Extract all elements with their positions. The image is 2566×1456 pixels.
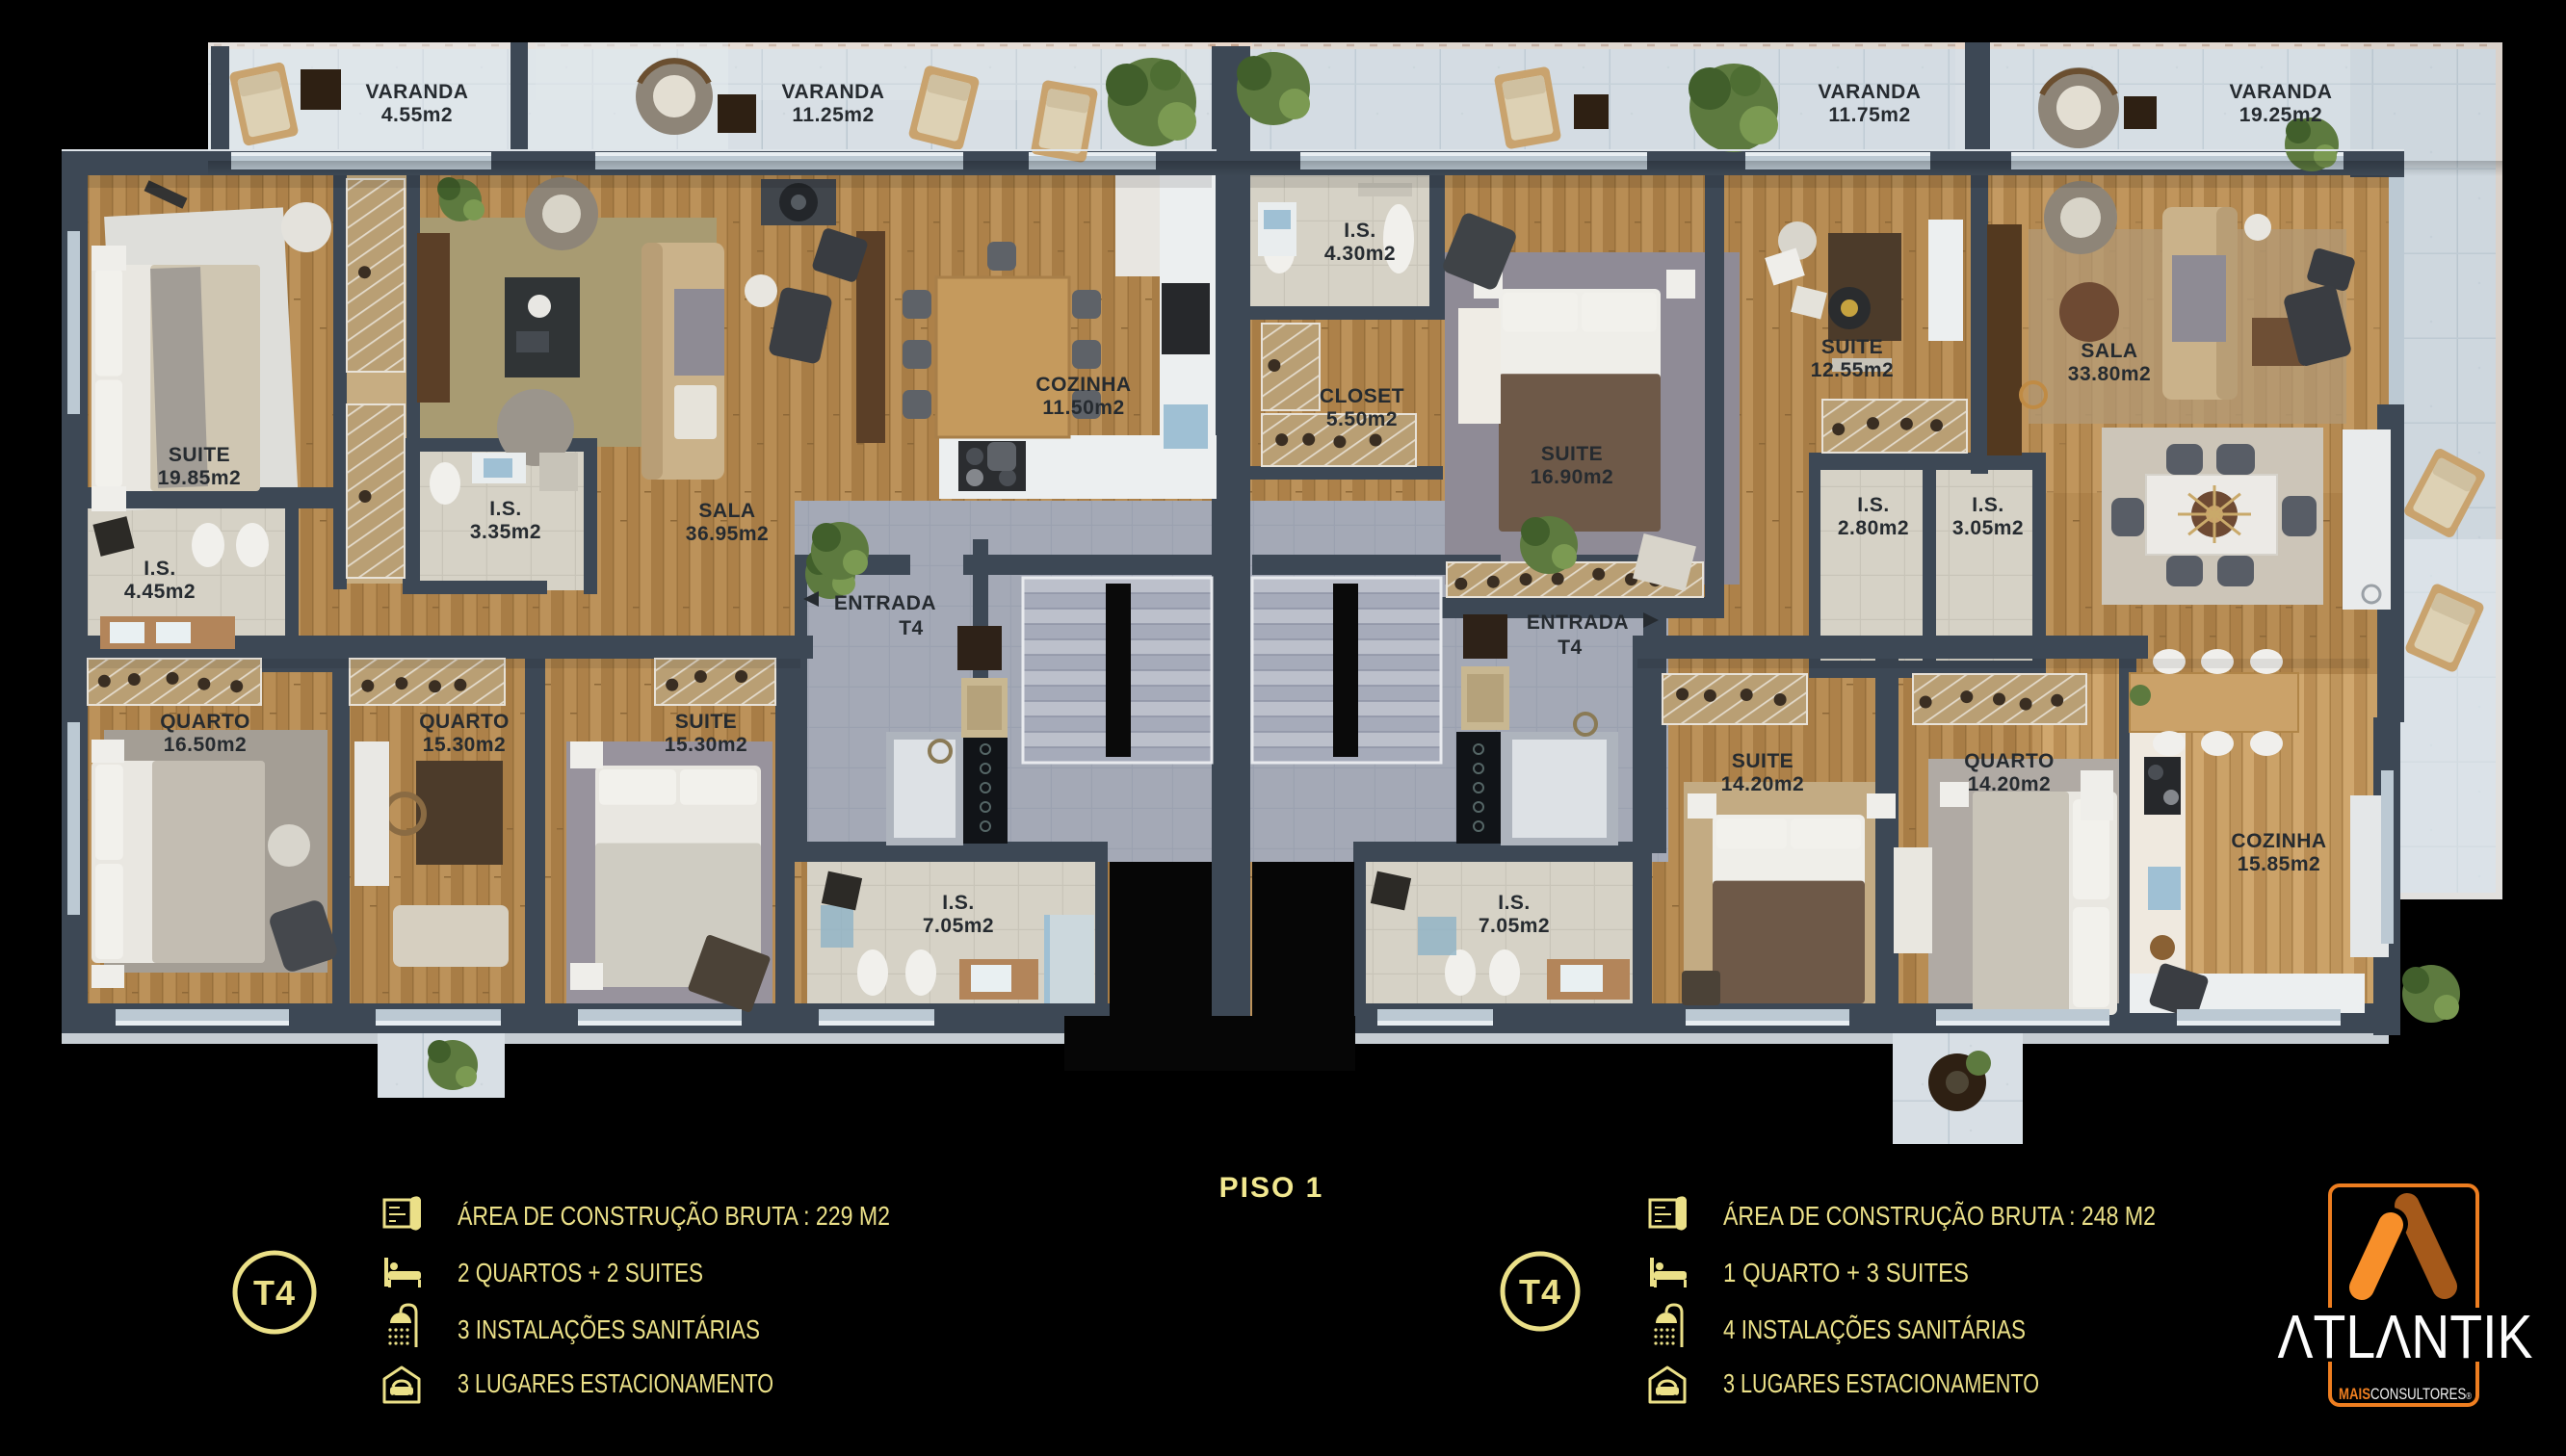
svg-text:QUARTO: QUARTO	[1964, 750, 2055, 772]
svg-text:I.S.: I.S.	[942, 892, 975, 914]
svg-text:3.35m2: 3.35m2	[470, 521, 541, 543]
svg-text:19.25m2: 19.25m2	[2239, 104, 2322, 126]
svg-text:3.05m2: 3.05m2	[1952, 517, 2024, 539]
svg-text:PISO 1: PISO 1	[1219, 1172, 1324, 1204]
svg-text:ΛTLΛNTIK: ΛTLΛNTIK	[2278, 1302, 2533, 1371]
svg-text:ÁREA DE CONSTRUÇÃO BRUTA : 22: ÁREA DE CONSTRUÇÃO BRUTA : 229 M2	[458, 1201, 890, 1231]
svg-text:14.20m2: 14.20m2	[1721, 773, 1804, 795]
svg-text:1 QUARTO + 3 SUITES: 1 QUARTO + 3 SUITES	[1723, 1258, 1969, 1287]
svg-text:7.05m2: 7.05m2	[1479, 915, 1550, 937]
svg-text:SUITE: SUITE	[675, 711, 737, 733]
svg-text:MAISCONSULTORES®: MAISCONSULTORES®	[2339, 1385, 2472, 1403]
svg-text:4 INSTALAÇÕES SANITÁRIAS: 4 INSTALAÇÕES SANITÁRIAS	[1723, 1314, 2026, 1344]
svg-text:15.30m2: 15.30m2	[423, 734, 506, 756]
svg-text:SUITE: SUITE	[1541, 443, 1603, 465]
svg-text:COZINHA: COZINHA	[1035, 374, 1131, 396]
svg-text:2.80m2: 2.80m2	[1838, 517, 1909, 539]
svg-text:SALA: SALA	[698, 500, 755, 522]
svg-text:T4: T4	[899, 617, 924, 639]
svg-text:11.50m2: 11.50m2	[1042, 397, 1124, 419]
svg-text:2 QUARTOS + 2 SUITES: 2 QUARTOS + 2 SUITES	[458, 1258, 703, 1287]
svg-text:4.45m2: 4.45m2	[124, 581, 196, 603]
svg-text:15.30m2: 15.30m2	[665, 734, 747, 756]
svg-text:I.S.: I.S.	[144, 558, 176, 580]
svg-text:QUARTO: QUARTO	[419, 711, 510, 733]
svg-text:T4: T4	[253, 1273, 296, 1313]
svg-text:ENTRADA: ENTRADA	[1527, 611, 1629, 634]
svg-text:5.50m2: 5.50m2	[1326, 408, 1398, 430]
svg-text:ÁREA DE CONSTRUÇÃO BRUTA : 24: ÁREA DE CONSTRUÇÃO BRUTA : 248 M2	[1723, 1201, 2156, 1231]
svg-text:VARANDA: VARANDA	[366, 81, 469, 103]
svg-text:SUITE: SUITE	[1732, 750, 1794, 772]
svg-text:11.75m2: 11.75m2	[1828, 104, 1910, 126]
svg-text:12.55m2: 12.55m2	[1811, 359, 1894, 381]
svg-text:4.55m2: 4.55m2	[381, 104, 453, 126]
svg-text:VARANDA: VARANDA	[1819, 81, 1922, 103]
svg-text:SUITE: SUITE	[169, 444, 230, 466]
svg-text:I.S.: I.S.	[1344, 220, 1376, 242]
svg-text:I.S.: I.S.	[1498, 892, 1531, 914]
svg-text:7.05m2: 7.05m2	[923, 915, 994, 937]
svg-text:11.25m2: 11.25m2	[792, 104, 874, 126]
svg-text:33.80m2: 33.80m2	[2068, 363, 2151, 385]
svg-text:16.90m2: 16.90m2	[1531, 466, 1613, 488]
svg-text:COZINHA: COZINHA	[2231, 830, 2326, 852]
svg-text:SUITE: SUITE	[1821, 336, 1883, 358]
svg-text:T4: T4	[1558, 637, 1583, 659]
svg-text:14.20m2: 14.20m2	[1968, 773, 2051, 795]
svg-text:T4: T4	[1519, 1272, 1561, 1312]
svg-text:VARANDA: VARANDA	[782, 81, 885, 103]
svg-text:QUARTO: QUARTO	[160, 711, 250, 733]
svg-text:CLOSET: CLOSET	[1320, 385, 1404, 407]
svg-text:19.85m2: 19.85m2	[158, 467, 241, 489]
svg-text:VARANDA: VARANDA	[2230, 81, 2333, 103]
svg-text:I.S.: I.S.	[1857, 494, 1890, 516]
svg-text:SALA: SALA	[2081, 340, 2137, 362]
svg-text:36.95m2: 36.95m2	[686, 523, 769, 545]
svg-text:ENTRADA: ENTRADA	[834, 592, 936, 614]
svg-text:3 INSTALAÇÕES SANITÁRIAS: 3 INSTALAÇÕES SANITÁRIAS	[458, 1314, 760, 1344]
svg-text:4.30m2: 4.30m2	[1324, 243, 1396, 265]
svg-text:I.S.: I.S.	[489, 498, 522, 520]
svg-text:I.S.: I.S.	[1972, 494, 2004, 516]
svg-text:3 LUGARES ESTACIONAMENTO: 3 LUGARES ESTACIONAMENTO	[1723, 1368, 2039, 1398]
svg-text:15.85m2: 15.85m2	[2238, 853, 2320, 875]
svg-text:3 LUGARES ESTACIONAMENTO: 3 LUGARES ESTACIONAMENTO	[458, 1368, 773, 1398]
svg-text:16.50m2: 16.50m2	[164, 734, 247, 756]
